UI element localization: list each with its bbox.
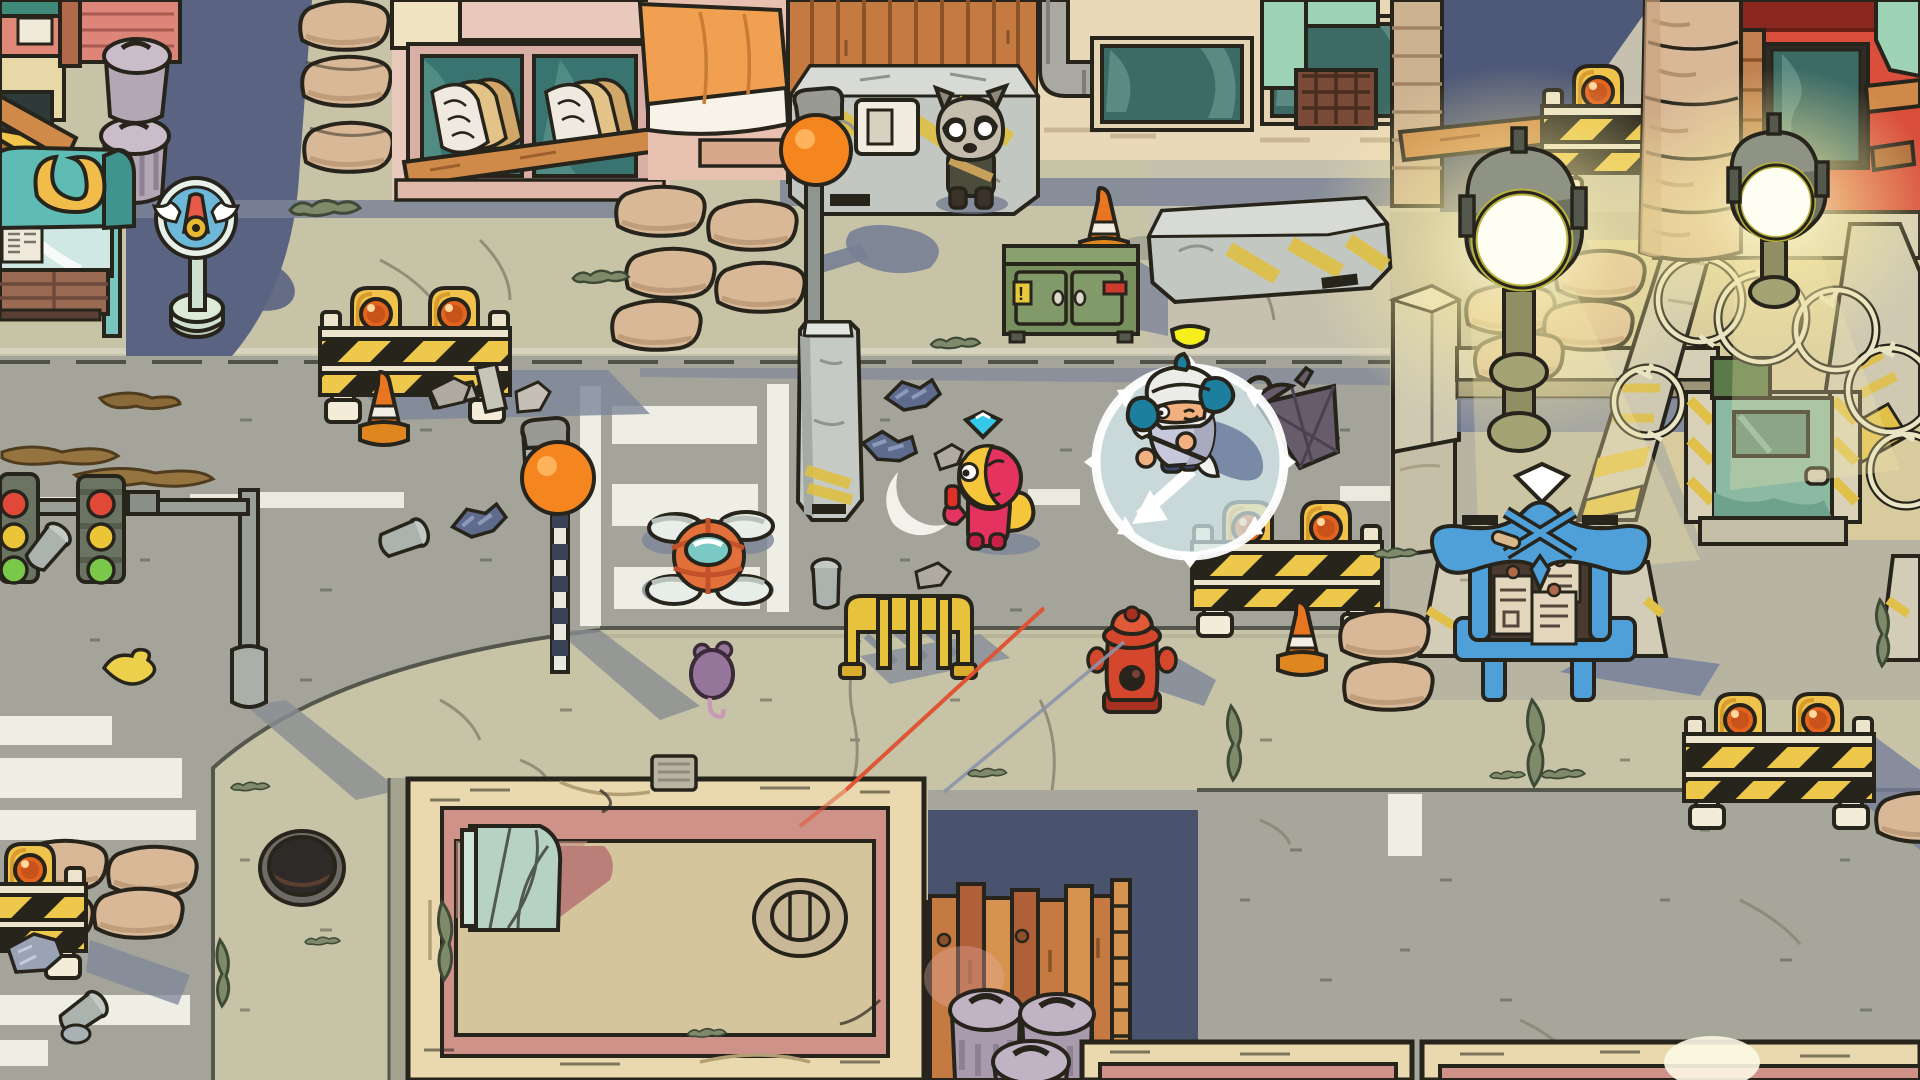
svg-text:!: ! (1018, 284, 1024, 304)
